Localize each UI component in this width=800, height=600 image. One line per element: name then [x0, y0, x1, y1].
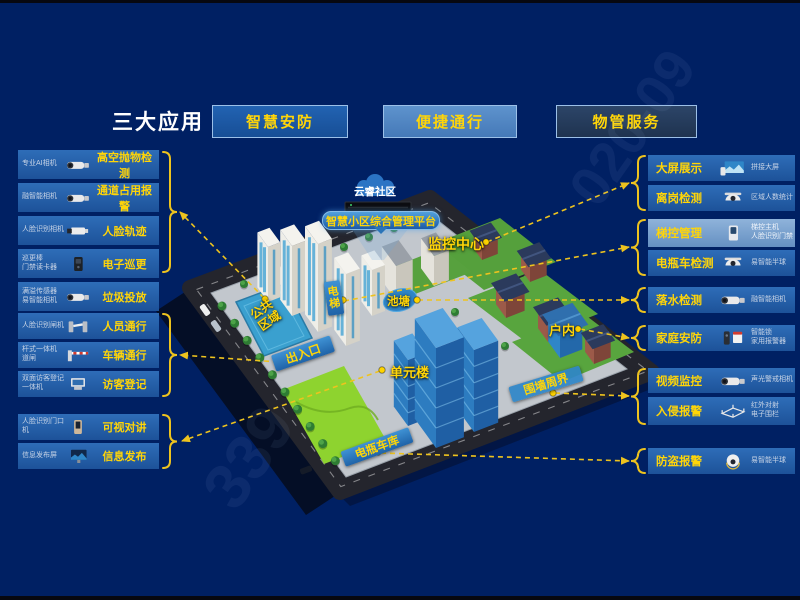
dome-camera-icon	[718, 188, 748, 208]
feature-row-ebike-detection[interactable]: 电瓶车检测 易智能半球	[648, 250, 795, 276]
device-label: 人脸识别门口机	[20, 418, 64, 436]
feature-label: 电瓶车检测	[650, 255, 718, 271]
app-button-property-service[interactable]: 物管服务	[556, 105, 697, 138]
device-label: 声光警戒相机	[748, 376, 793, 385]
feature-row-home-security[interactable]: 家庭安防 智能锁 家用报警器	[648, 325, 795, 351]
bullet-camera-icon	[718, 371, 748, 391]
app-button-label: 便捷通行	[416, 111, 484, 132]
access-terminal-icon	[718, 223, 748, 243]
device-label: 区域人数统计	[748, 194, 793, 203]
device-label: 人脸识别相机	[20, 226, 64, 235]
device-label: 易智能半球	[748, 457, 793, 466]
device-label: 满溢传感器 易智能相机	[20, 288, 64, 306]
map-label-indoor: 户内	[549, 320, 575, 339]
app-button-smart-security[interactable]: 智慧安防	[212, 105, 348, 138]
feature-row-elevator-control[interactable]: 梯控管理 梯控主机 人脸识别门禁	[648, 219, 795, 247]
map-label-monitor-center: 监控中心	[428, 234, 484, 254]
feature-label: 入侵报警	[650, 403, 718, 419]
device-label: 拼接大屏	[748, 164, 793, 173]
feature-row-face-track[interactable]: 人脸识别相机 人脸轨迹	[18, 216, 159, 245]
feature-row-channel-occupancy[interactable]: 融智能相机 通道占用报警	[18, 183, 159, 212]
info-screen-icon	[64, 446, 92, 466]
feature-label: 人脸轨迹	[92, 223, 157, 239]
device-label: 杆式一体机 道闸	[20, 346, 64, 364]
feature-label: 家庭安防	[650, 330, 718, 346]
device-label: 融智能相机	[20, 193, 64, 202]
bullet-camera-icon	[64, 155, 92, 175]
map-label-unit-building: 单元楼	[390, 362, 429, 381]
management-platform-banner: 智慧小区综合管理平台	[322, 211, 440, 230]
feature-label: 可视对讲	[92, 419, 157, 435]
platform-label: 智慧小区综合管理平台	[326, 213, 436, 229]
feature-label: 垃圾投放	[92, 289, 157, 305]
page-title: 三大应用	[112, 106, 204, 136]
feature-row-pedestrian-access[interactable]: 人脸识别闸机 人员通行	[18, 313, 159, 339]
feature-label: 高空抛物检测	[92, 149, 157, 181]
device-label: 信息发布屏	[20, 452, 64, 461]
feature-label: 防盗报警	[650, 453, 718, 469]
feature-row-burglar-alarm[interactable]: 防盗报警 易智能半球	[648, 448, 795, 474]
bullet-camera-icon	[64, 287, 92, 307]
device-label: 融智能相机	[748, 296, 793, 305]
feature-row-big-screen[interactable]: 大屏展示 拼接大屏	[648, 155, 795, 181]
door-station-icon	[64, 417, 92, 437]
device-label: 专业AI相机	[20, 160, 64, 169]
feature-row-video-intercom[interactable]: 人脸识别门口机 可视对讲	[18, 414, 159, 440]
app-button-label: 智慧安防	[246, 111, 314, 132]
smart-lock-siren-icon	[718, 328, 748, 348]
feature-row-electronic-patrol[interactable]: 巡更棒 门禁读卡器 电子巡更	[18, 249, 159, 278]
feature-row-intrusion-alarm[interactable]: 入侵报警 红外对射 电子围栏	[648, 397, 795, 425]
box-camera-icon	[64, 221, 92, 241]
card-reader-icon	[64, 254, 92, 274]
video-wall-icon	[718, 158, 748, 178]
device-label: 智能锁 家用报警器	[748, 329, 793, 347]
feature-row-info-publish[interactable]: 信息发布屏 信息发布	[18, 443, 159, 469]
feature-label: 通道占用报警	[92, 182, 157, 214]
turnstile-icon	[64, 316, 92, 336]
feature-row-absence-detection[interactable]: 离岗检测 区域人数统计	[648, 185, 795, 211]
visitor-terminal-icon	[64, 374, 92, 394]
feature-row-high-altitude-throwing[interactable]: 专业AI相机 高空抛物检测	[18, 150, 159, 179]
app-button-convenient-access[interactable]: 便捷通行	[383, 105, 517, 138]
cloud-community-label: 云睿社区	[352, 184, 398, 199]
bottom-border	[0, 596, 800, 600]
feature-label: 访客登记	[92, 376, 157, 392]
device-label: 红外对射 电子围栏	[748, 402, 793, 420]
map-label-pond: 池塘	[387, 293, 410, 309]
feature-label: 视频监控	[650, 373, 718, 389]
bullet-camera-icon	[718, 290, 748, 310]
device-label: 易智能半球	[748, 259, 793, 268]
feature-row-garbage-disposal[interactable]: 满溢传感器 易智能相机 垃圾投放	[18, 282, 159, 311]
feature-label: 车辆通行	[92, 347, 157, 363]
bullet-camera-icon	[64, 188, 92, 208]
device-label: 梯控主机 人脸识别门禁	[748, 224, 793, 242]
feature-label: 梯控管理	[650, 225, 718, 241]
feature-label: 大屏展示	[650, 160, 718, 176]
feature-label: 落水检测	[650, 292, 718, 308]
feature-label: 电子巡更	[92, 256, 157, 272]
fence-icon	[718, 401, 748, 421]
feature-label: 信息发布	[92, 448, 157, 464]
barrier-gate-icon	[64, 345, 92, 365]
feature-row-video-surveillance[interactable]: 视频监控 声光警戒相机	[648, 368, 795, 393]
top-border	[0, 0, 800, 3]
device-label: 人脸识别闸机	[20, 322, 64, 331]
smart-community-infographic: 三大应用 智慧安防 便捷通行 物管服务 专业AI相机 高空抛物检测 融智能相机 …	[0, 0, 800, 600]
turret-camera-icon	[718, 451, 748, 471]
feature-row-visitor-registration[interactable]: 双面访客登记 一体机 访客登记	[18, 371, 159, 397]
feature-label: 离岗检测	[650, 190, 718, 206]
app-button-label: 物管服务	[592, 111, 660, 132]
feature-label: 人员通行	[92, 318, 157, 334]
feature-row-vehicle-access[interactable]: 杆式一体机 道闸 车辆通行	[18, 342, 159, 368]
dome-camera-icon	[718, 253, 748, 273]
device-label: 巡更棒 门禁读卡器	[20, 255, 64, 273]
elevator-label: 电梯	[324, 285, 343, 311]
feature-row-drowning-detection[interactable]: 落水检测 融智能相机	[648, 287, 795, 313]
device-label: 双面访客登记 一体机	[20, 375, 64, 393]
